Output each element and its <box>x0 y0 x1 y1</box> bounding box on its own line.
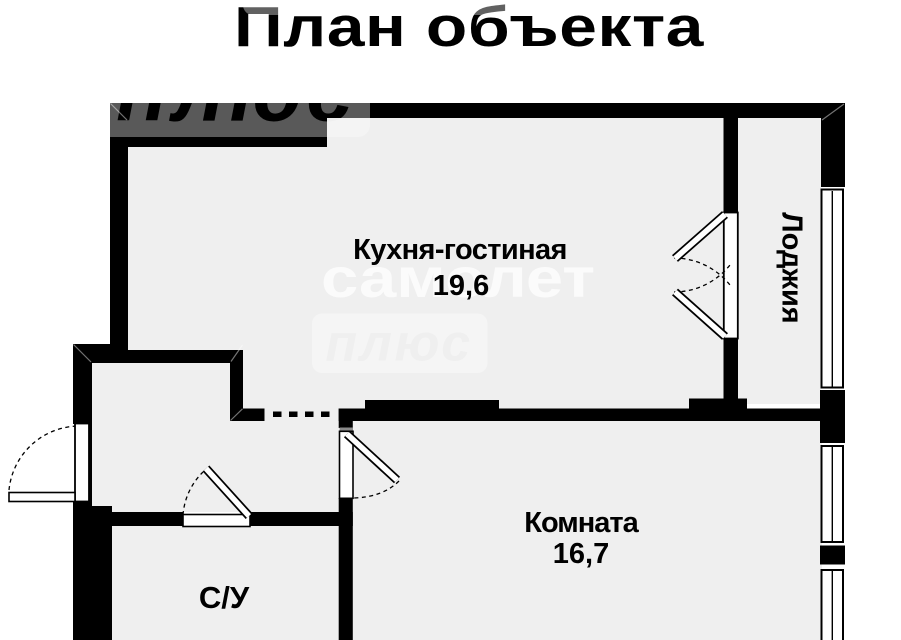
svg-text:Комната: Комната <box>524 507 639 539</box>
svg-text:Кухня-гостиная: Кухня-гостиная <box>353 234 567 266</box>
svg-text:16,7: 16,7 <box>553 538 609 570</box>
svg-text:Лоджия: Лоджия <box>776 212 808 323</box>
svg-text:19,6: 19,6 <box>433 270 489 302</box>
svg-text:С/У: С/У <box>199 580 250 615</box>
